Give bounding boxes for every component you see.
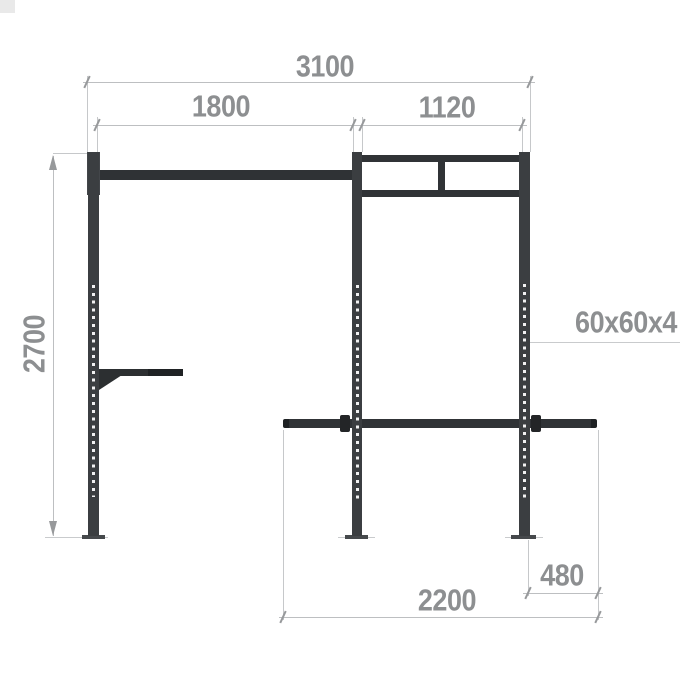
dimension-label-frame-span: 1120 [419, 92, 476, 123]
lower-crossbar [283, 419, 597, 428]
dimension-line-1800-1120 [93, 125, 527, 126]
arrowhead-up-icon [49, 155, 57, 170]
dimension-label-overhang: 480 [540, 560, 584, 591]
dimension-label-overall-height: 2700 [19, 315, 50, 373]
extension-line-3100-left [87, 76, 88, 152]
arrowhead-down-icon [49, 521, 57, 536]
shelf-bracket-arm-tip [148, 369, 183, 376]
crossbar-collar-left [340, 415, 350, 432]
extension-line-2200-left [283, 430, 284, 620]
corner-artifact [0, 0, 15, 13]
crossbar-collar-right [531, 415, 541, 432]
middle-post-holes [356, 285, 359, 502]
dimension-line-2700 [53, 156, 54, 536]
pullup-bar [94, 170, 357, 180]
label-tube-profile: 60x60x4 [575, 307, 677, 338]
shelf-bracket-gusset [99, 375, 122, 390]
extension-line-3100-right [530, 76, 531, 152]
right-post-holes [523, 284, 526, 500]
dimension-line-480 [523, 593, 603, 594]
leader-line-tube-profile [528, 342, 680, 343]
left-post-holes [92, 285, 95, 497]
dimension-label-lower-bar: 2200 [418, 585, 476, 616]
dimension-label-pullup-span: 1800 [192, 91, 250, 122]
extension-line-2700-top [53, 153, 88, 154]
dimension-label-overall-width: 3100 [296, 51, 354, 82]
technical-drawing-canvas: 3100 1800 1120 2700 60x60x4 480 2200 [0, 0, 700, 700]
top-frame-divider [438, 157, 445, 195]
